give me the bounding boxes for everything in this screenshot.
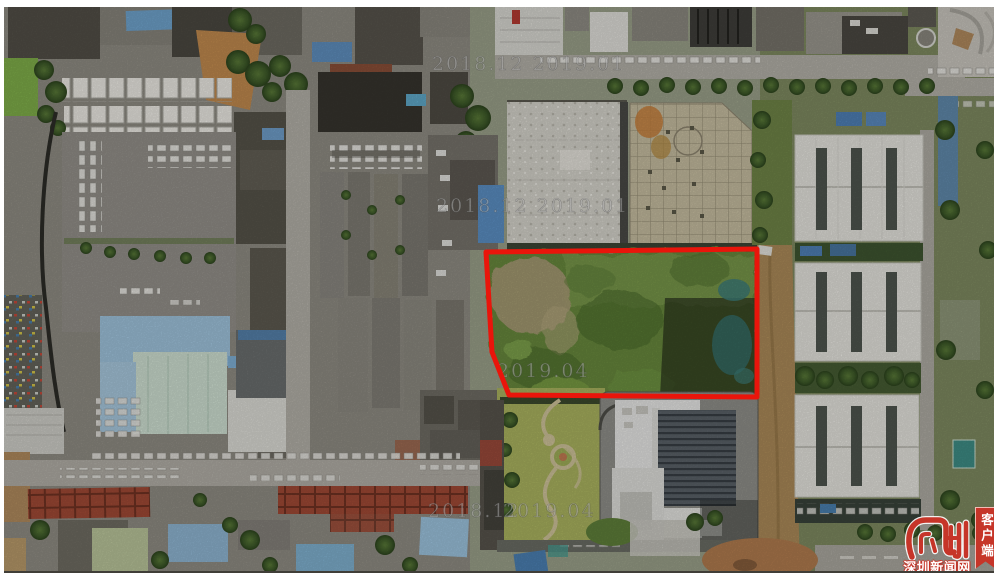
- satellite-photo: 2018.12 2019.01 2018.12 2019.01 2019.04 …: [4, 7, 994, 573]
- site-name: 深圳新闻网: [899, 557, 975, 573]
- shenzhen-news-logo: 深圳新闻网 客户端: [899, 505, 994, 571]
- shenzhen-news-logo-mark: [901, 513, 973, 561]
- ribbon-label: 客户端: [976, 513, 994, 560]
- aerial-scene: 2018.12 2019.01 2018.12 2019.01 2019.04 …: [4, 7, 994, 571]
- photo-grain: [4, 7, 994, 571]
- client-app-ribbon: 客户端: [975, 507, 994, 569]
